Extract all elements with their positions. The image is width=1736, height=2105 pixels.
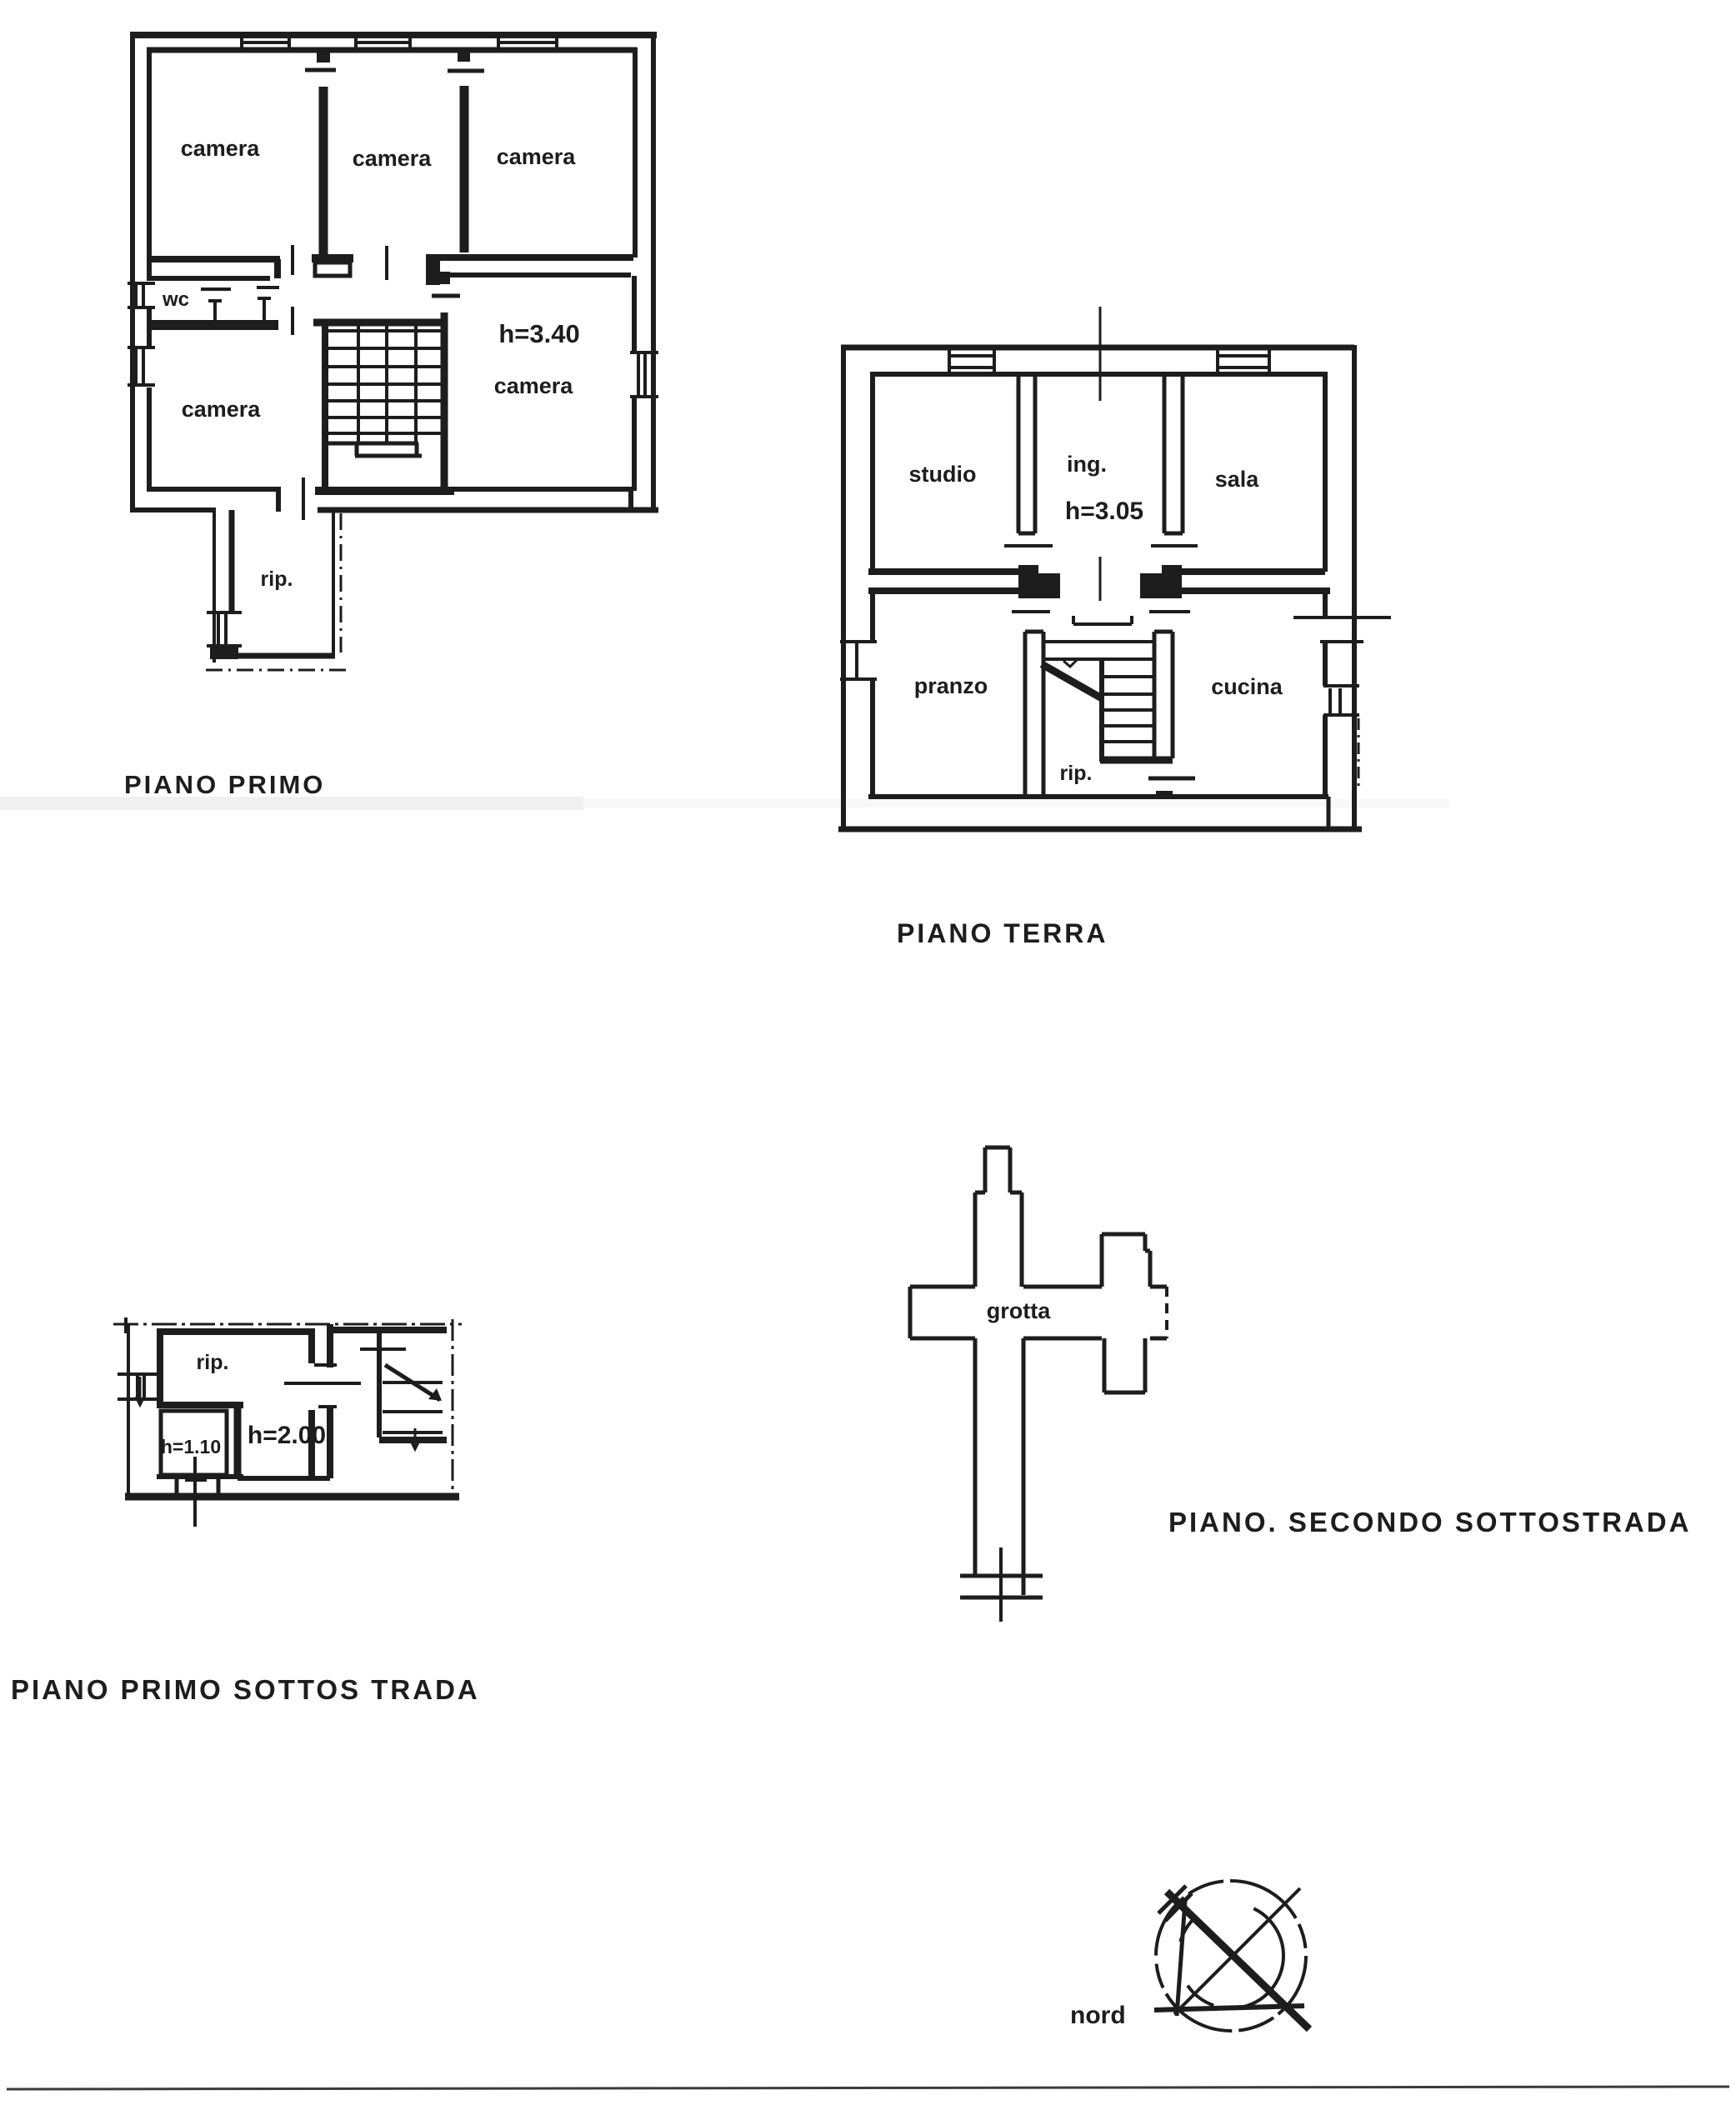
- svg-text:grotta: grotta: [987, 1298, 1051, 1323]
- svg-text:camera: camera: [494, 373, 574, 398]
- svg-text:h=3.40: h=3.40: [498, 319, 579, 348]
- svg-text:wc: wc: [162, 288, 189, 311]
- svg-text:camera: camera: [182, 397, 262, 422]
- svg-text:PIANO. SECONDO SOTTOSTRADA: PIANO. SECONDO SOTTOSTRADA: [1168, 1507, 1691, 1537]
- svg-text:PIANO TERRA: PIANO TERRA: [897, 918, 1108, 948]
- svg-text:camera: camera: [181, 136, 261, 161]
- svg-text:h=3.05: h=3.05: [1065, 497, 1143, 525]
- svg-text:rip.: rip.: [197, 1351, 229, 1374]
- svg-text:nord: nord: [1070, 2002, 1126, 2029]
- svg-text:rip.: rip.: [261, 567, 293, 591]
- svg-text:ing.: ing.: [1067, 452, 1107, 477]
- svg-text:sala: sala: [1215, 467, 1260, 492]
- svg-text:cucina: cucina: [1211, 674, 1283, 699]
- svg-text:camera: camera: [497, 144, 577, 169]
- svg-text:h=1.10: h=1.10: [161, 1436, 221, 1457]
- svg-text:PIANO PRIMO: PIANO PRIMO: [124, 770, 325, 799]
- svg-text:h=2.00: h=2.00: [248, 1422, 326, 1449]
- svg-text:rip.: rip.: [1060, 762, 1093, 785]
- svg-text:PIANO PRIMO SOTTOS TRADA: PIANO PRIMO SOTTOS TRADA: [11, 1674, 480, 1705]
- svg-text:pranzo: pranzo: [914, 673, 988, 698]
- svg-text:camera: camera: [353, 146, 433, 171]
- svg-text:studio: studio: [909, 462, 977, 487]
